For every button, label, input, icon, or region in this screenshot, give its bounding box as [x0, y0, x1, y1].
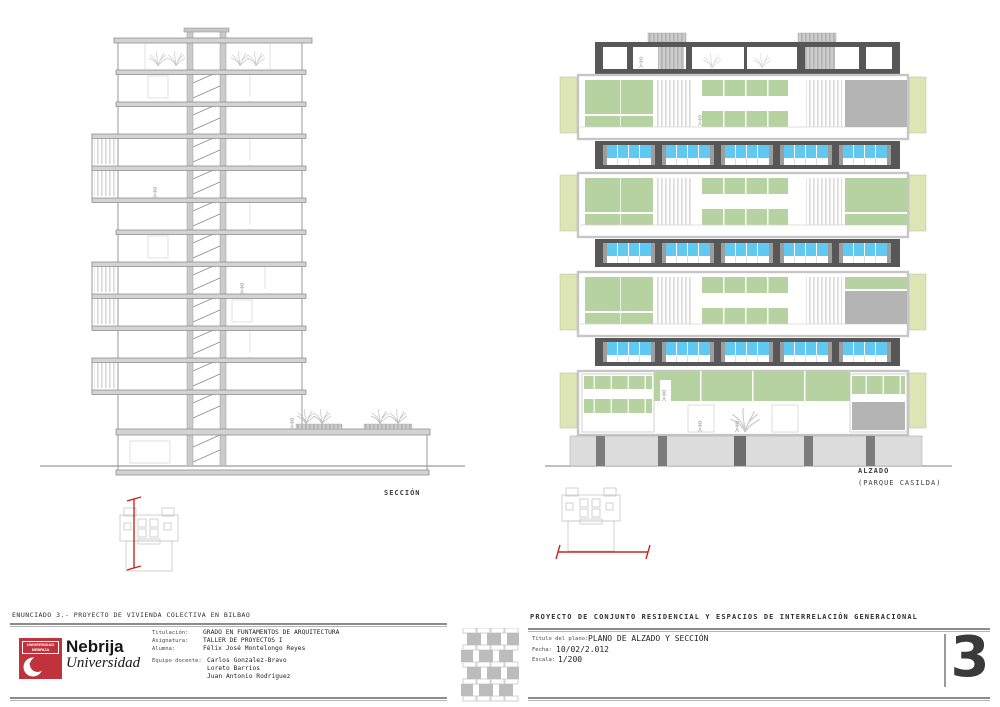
rule — [10, 623, 447, 625]
titleblock-divider — [944, 634, 946, 687]
project-title: PROYECTO DE CONJUNTO RESIDENCIAL Y ESPAC… — [530, 613, 992, 621]
field-value-asignatura: TALLER DE PROYECTOS I — [203, 637, 283, 644]
window-floor — [595, 141, 900, 169]
roof-trees — [145, 43, 270, 70]
field-label-titulacion: Titulación: — [152, 630, 188, 636]
elevation-drawing — [545, 33, 952, 466]
section-label: SECCIÓN — [384, 489, 421, 497]
brick-pattern-logo — [461, 628, 521, 705]
date-label: Fecha: — [532, 647, 552, 653]
right-panel-green — [845, 178, 907, 225]
penthouse-floor — [595, 42, 900, 74]
scale-value: 1/200 — [558, 655, 582, 664]
podium — [116, 409, 430, 475]
field-value-titulacion: GRADO EN FUNTAMENTOS DE ARQUITECTURA — [203, 629, 339, 636]
key-plan-elevation — [556, 488, 650, 559]
field-label-asignatura: Asignatura: — [152, 638, 188, 644]
right-panel-gray — [845, 80, 907, 127]
sheet-number: 3 — [948, 626, 992, 690]
podium-trees — [297, 409, 407, 424]
logo-subname: Universidad — [66, 655, 140, 672]
rule — [528, 700, 990, 701]
rule — [10, 697, 447, 699]
section-drawing — [40, 28, 465, 475]
rule — [10, 626, 447, 627]
date-value: 10/02/2.012 — [556, 645, 609, 654]
rule — [528, 697, 990, 699]
stair-core — [184, 28, 229, 466]
rooftop-unit — [648, 33, 686, 42]
enunciado-text: ENUNCIADO 3.- PROYECTO DE VIVIENDA COLEC… — [12, 611, 250, 619]
nebrija-logo: UNIVERSIDAD NEBRIJA — [19, 638, 62, 679]
nebrija-logo-tag: UNIVERSIDAD NEBRIJA — [22, 641, 59, 654]
logo-tag-line2: NEBRIJA — [23, 648, 58, 653]
field-label-alumna: Alumna: — [152, 646, 175, 652]
team-member-3: Juan Antonio Rodríguez — [207, 673, 290, 680]
drawing-sheet: SECCIÓN ALZADO (PARQUE CASILDA) ENUNCIAD… — [0, 0, 1000, 707]
field-value-alumna: Félix José Montelongo Reyes — [203, 645, 305, 652]
plan-title-value: PLANO DE ALZADO Y SECCIÓN — [588, 634, 708, 643]
elevation-label: ALZADO — [858, 467, 889, 475]
right-panel-gray — [845, 291, 907, 324]
team-member-1: Carlos Gonzalez-Bravo — [207, 657, 287, 664]
floor-slabs — [92, 38, 312, 395]
nebrija-face-icon — [22, 654, 48, 678]
drawings-canvas — [0, 0, 1000, 608]
team-member-2: Loreto Barrios — [207, 665, 260, 672]
rule — [528, 628, 990, 630]
key-plan-section — [120, 497, 178, 571]
interior-partitions — [148, 75, 265, 353]
right-panel-green — [845, 277, 907, 289]
rooftop-unit — [798, 33, 836, 42]
logo-name: Nebrija — [66, 637, 124, 657]
rule — [10, 700, 447, 701]
elevation-ground-floor — [560, 371, 926, 435]
scale-label: Escala: — [532, 657, 555, 663]
plan-title-label: Título del plano: — [532, 636, 588, 642]
field-label-equipo: Equipo docente: — [152, 658, 202, 664]
rule — [528, 631, 990, 632]
elevation-sublabel: (PARQUE CASILDA) — [858, 479, 941, 487]
elevation-podium — [570, 436, 922, 466]
